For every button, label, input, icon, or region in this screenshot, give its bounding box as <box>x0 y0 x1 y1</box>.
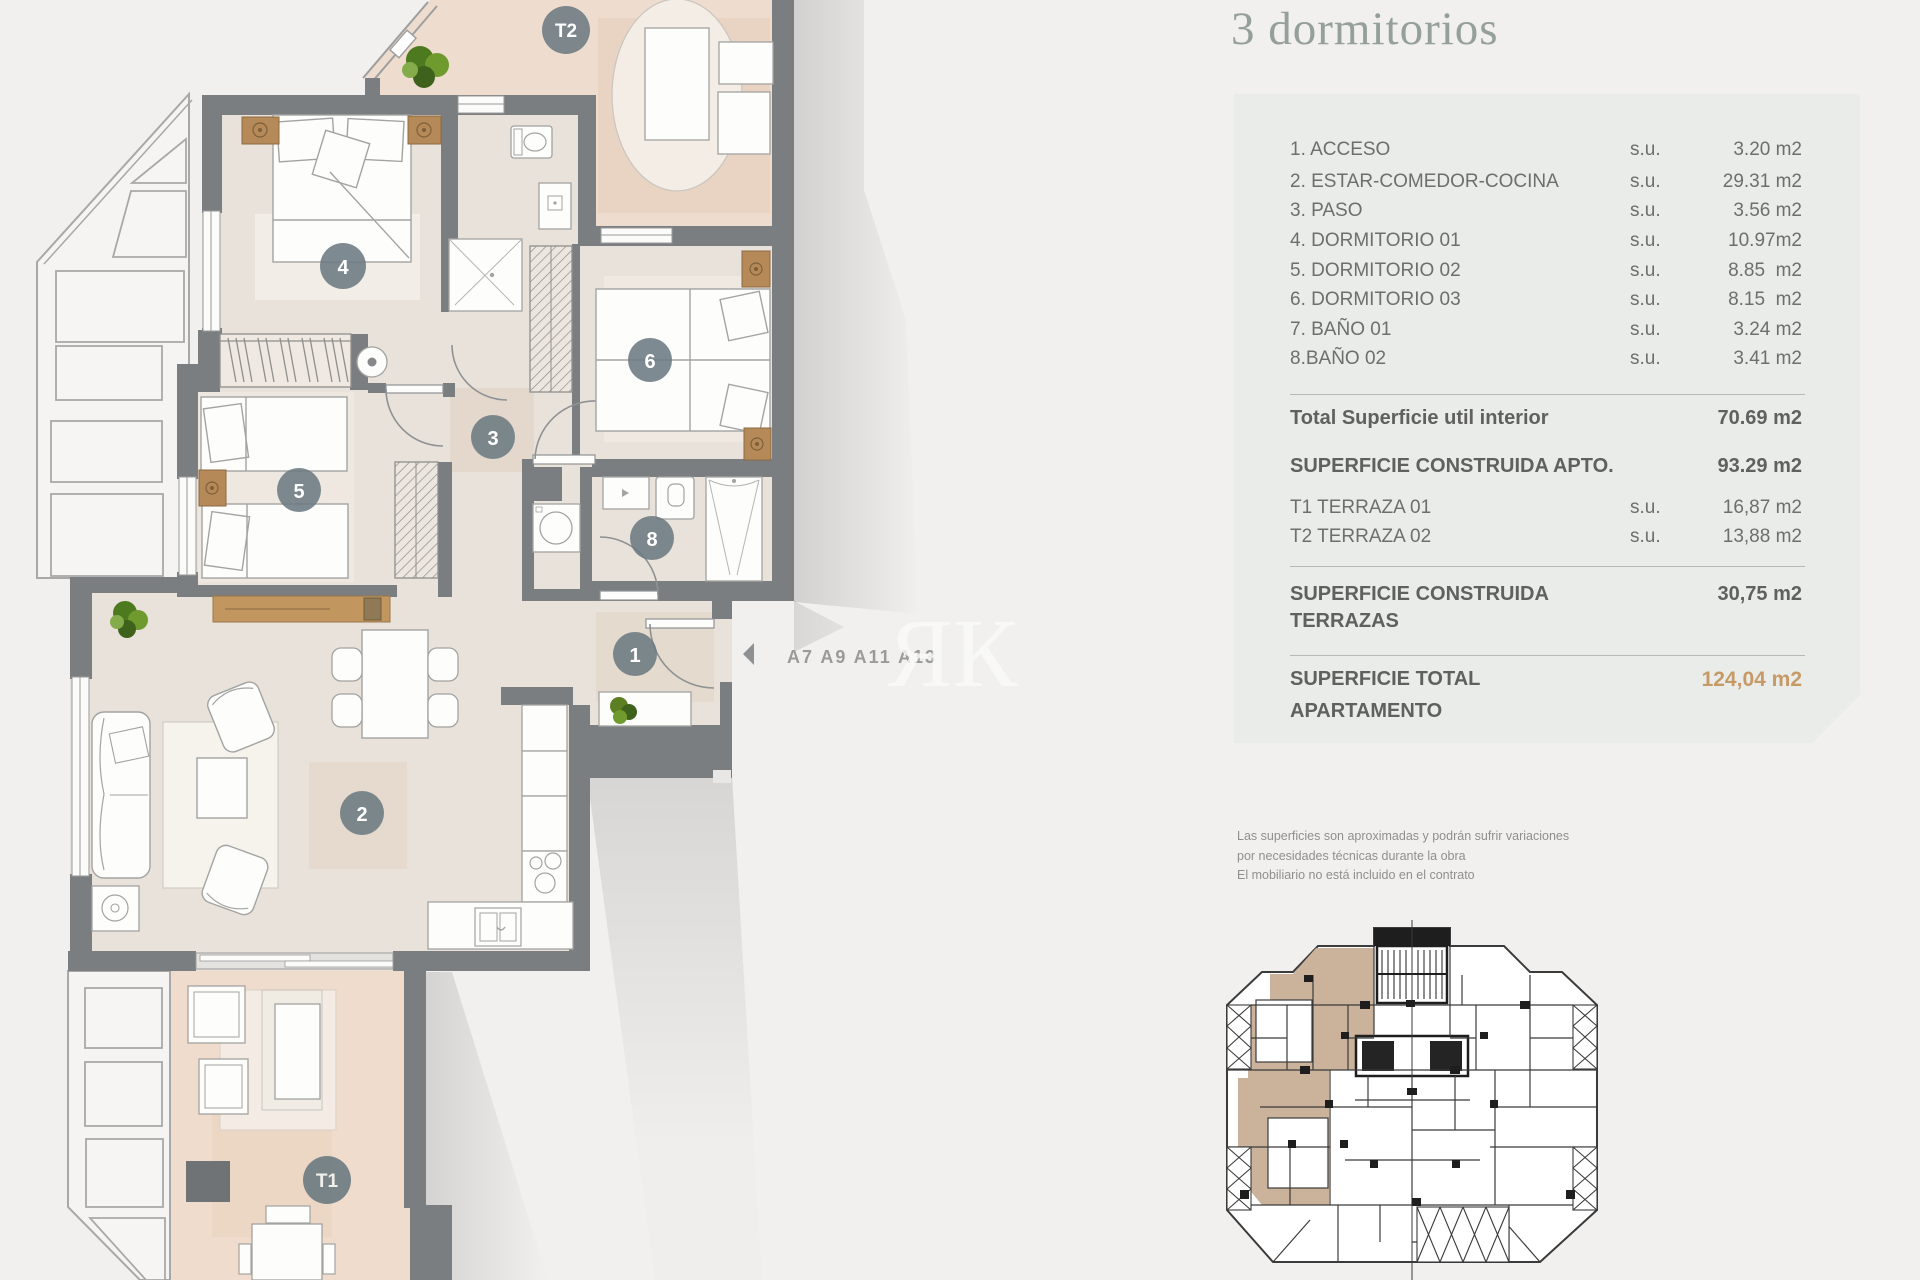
svg-text:5: 5 <box>293 481 304 503</box>
svg-text:T1: T1 <box>316 1171 339 1192</box>
svg-text:2: 2 <box>356 804 367 826</box>
svg-text:1: 1 <box>629 645 640 667</box>
svg-text:6: 6 <box>644 351 655 373</box>
svg-text:3: 3 <box>487 428 498 450</box>
svg-text:8: 8 <box>646 529 657 551</box>
svg-text:ЯК: ЯК <box>888 600 1019 707</box>
svg-text:4: 4 <box>337 257 349 279</box>
svg-text:T2: T2 <box>555 21 577 42</box>
